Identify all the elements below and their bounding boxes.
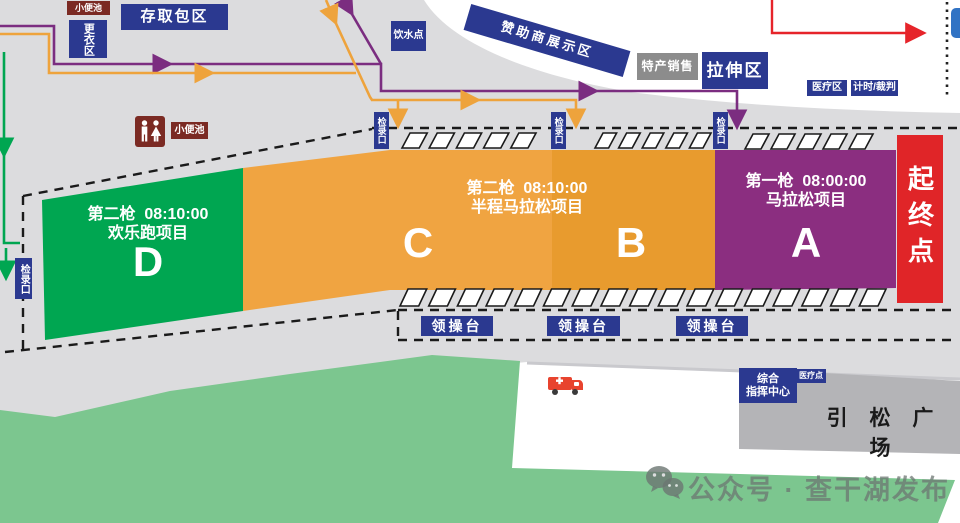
command-center-line2: 指挥中心 [746, 386, 790, 399]
checkin-gate-left: 检录口 [15, 258, 32, 299]
ambulance-icon [546, 372, 586, 398]
medical-point-label: 医疗点 [796, 369, 826, 383]
route-green [4, 52, 20, 276]
restroom-icon [135, 116, 165, 147]
zone-a-text: 第一枪 08:00:00 马拉松项目 [716, 172, 896, 210]
plaza-label: 引 松 广 场 [808, 402, 960, 462]
clipped-blue-marker [951, 8, 960, 38]
water-point-label: 饮水点 [391, 21, 426, 51]
zone-d-letter: D [116, 241, 180, 283]
wechat-icon [645, 465, 685, 500]
checkin-gate-b: 检录口 [551, 112, 566, 149]
marathon-start-area-map: 小便池 更衣区 存取包区 小便池 饮水点 赞助商展示区 特产销售 拉伸区 医疗区… [0, 0, 960, 523]
stage-platform-2: 领操台 [547, 316, 620, 336]
changing-room-label: 更衣区 [69, 20, 107, 58]
command-center-line1: 综合 [757, 373, 779, 386]
checkin-gate-c: 检录口 [374, 112, 389, 149]
medical-area-label: 医疗区 [807, 80, 847, 96]
zone-cb-text: 第二枪 08:10:00 半程马拉松项目 [377, 179, 677, 217]
bag-storage-label: 存取包区 [121, 4, 228, 30]
urinal-label-top: 小便池 [67, 1, 110, 15]
stretching-area-label: 拉伸区 [702, 52, 768, 89]
start-finish-label: 起终点 [897, 135, 943, 303]
checkin-gate-a: 检录口 [713, 112, 728, 149]
zone-a-letter: A [774, 222, 838, 264]
zone-cb-event: 半程马拉松项目 [377, 198, 677, 217]
zone-a-event: 马拉松项目 [716, 191, 896, 210]
zone-a-wave-time: 第一枪 08:00:00 [716, 172, 896, 191]
zone-d-wave-time: 第二枪 08:10:00 [48, 205, 248, 224]
zone-cb-wave-time: 第二枪 08:10:00 [377, 179, 677, 198]
watermark-text: 公众号 · 查干湖发布 [688, 468, 950, 507]
specialty-sales-label: 特产销售 [637, 53, 698, 80]
zone-b-letter: B [599, 222, 663, 264]
stage-platform-1: 领操台 [421, 316, 493, 336]
urinal-label-restroom: 小便池 [171, 122, 208, 139]
stage-platform-3: 领操台 [676, 316, 748, 336]
command-center-label: 综合 指挥中心 [739, 368, 797, 403]
zone-c-letter: C [386, 222, 450, 264]
timing-referee-label: 计时/裁判 [851, 80, 898, 96]
